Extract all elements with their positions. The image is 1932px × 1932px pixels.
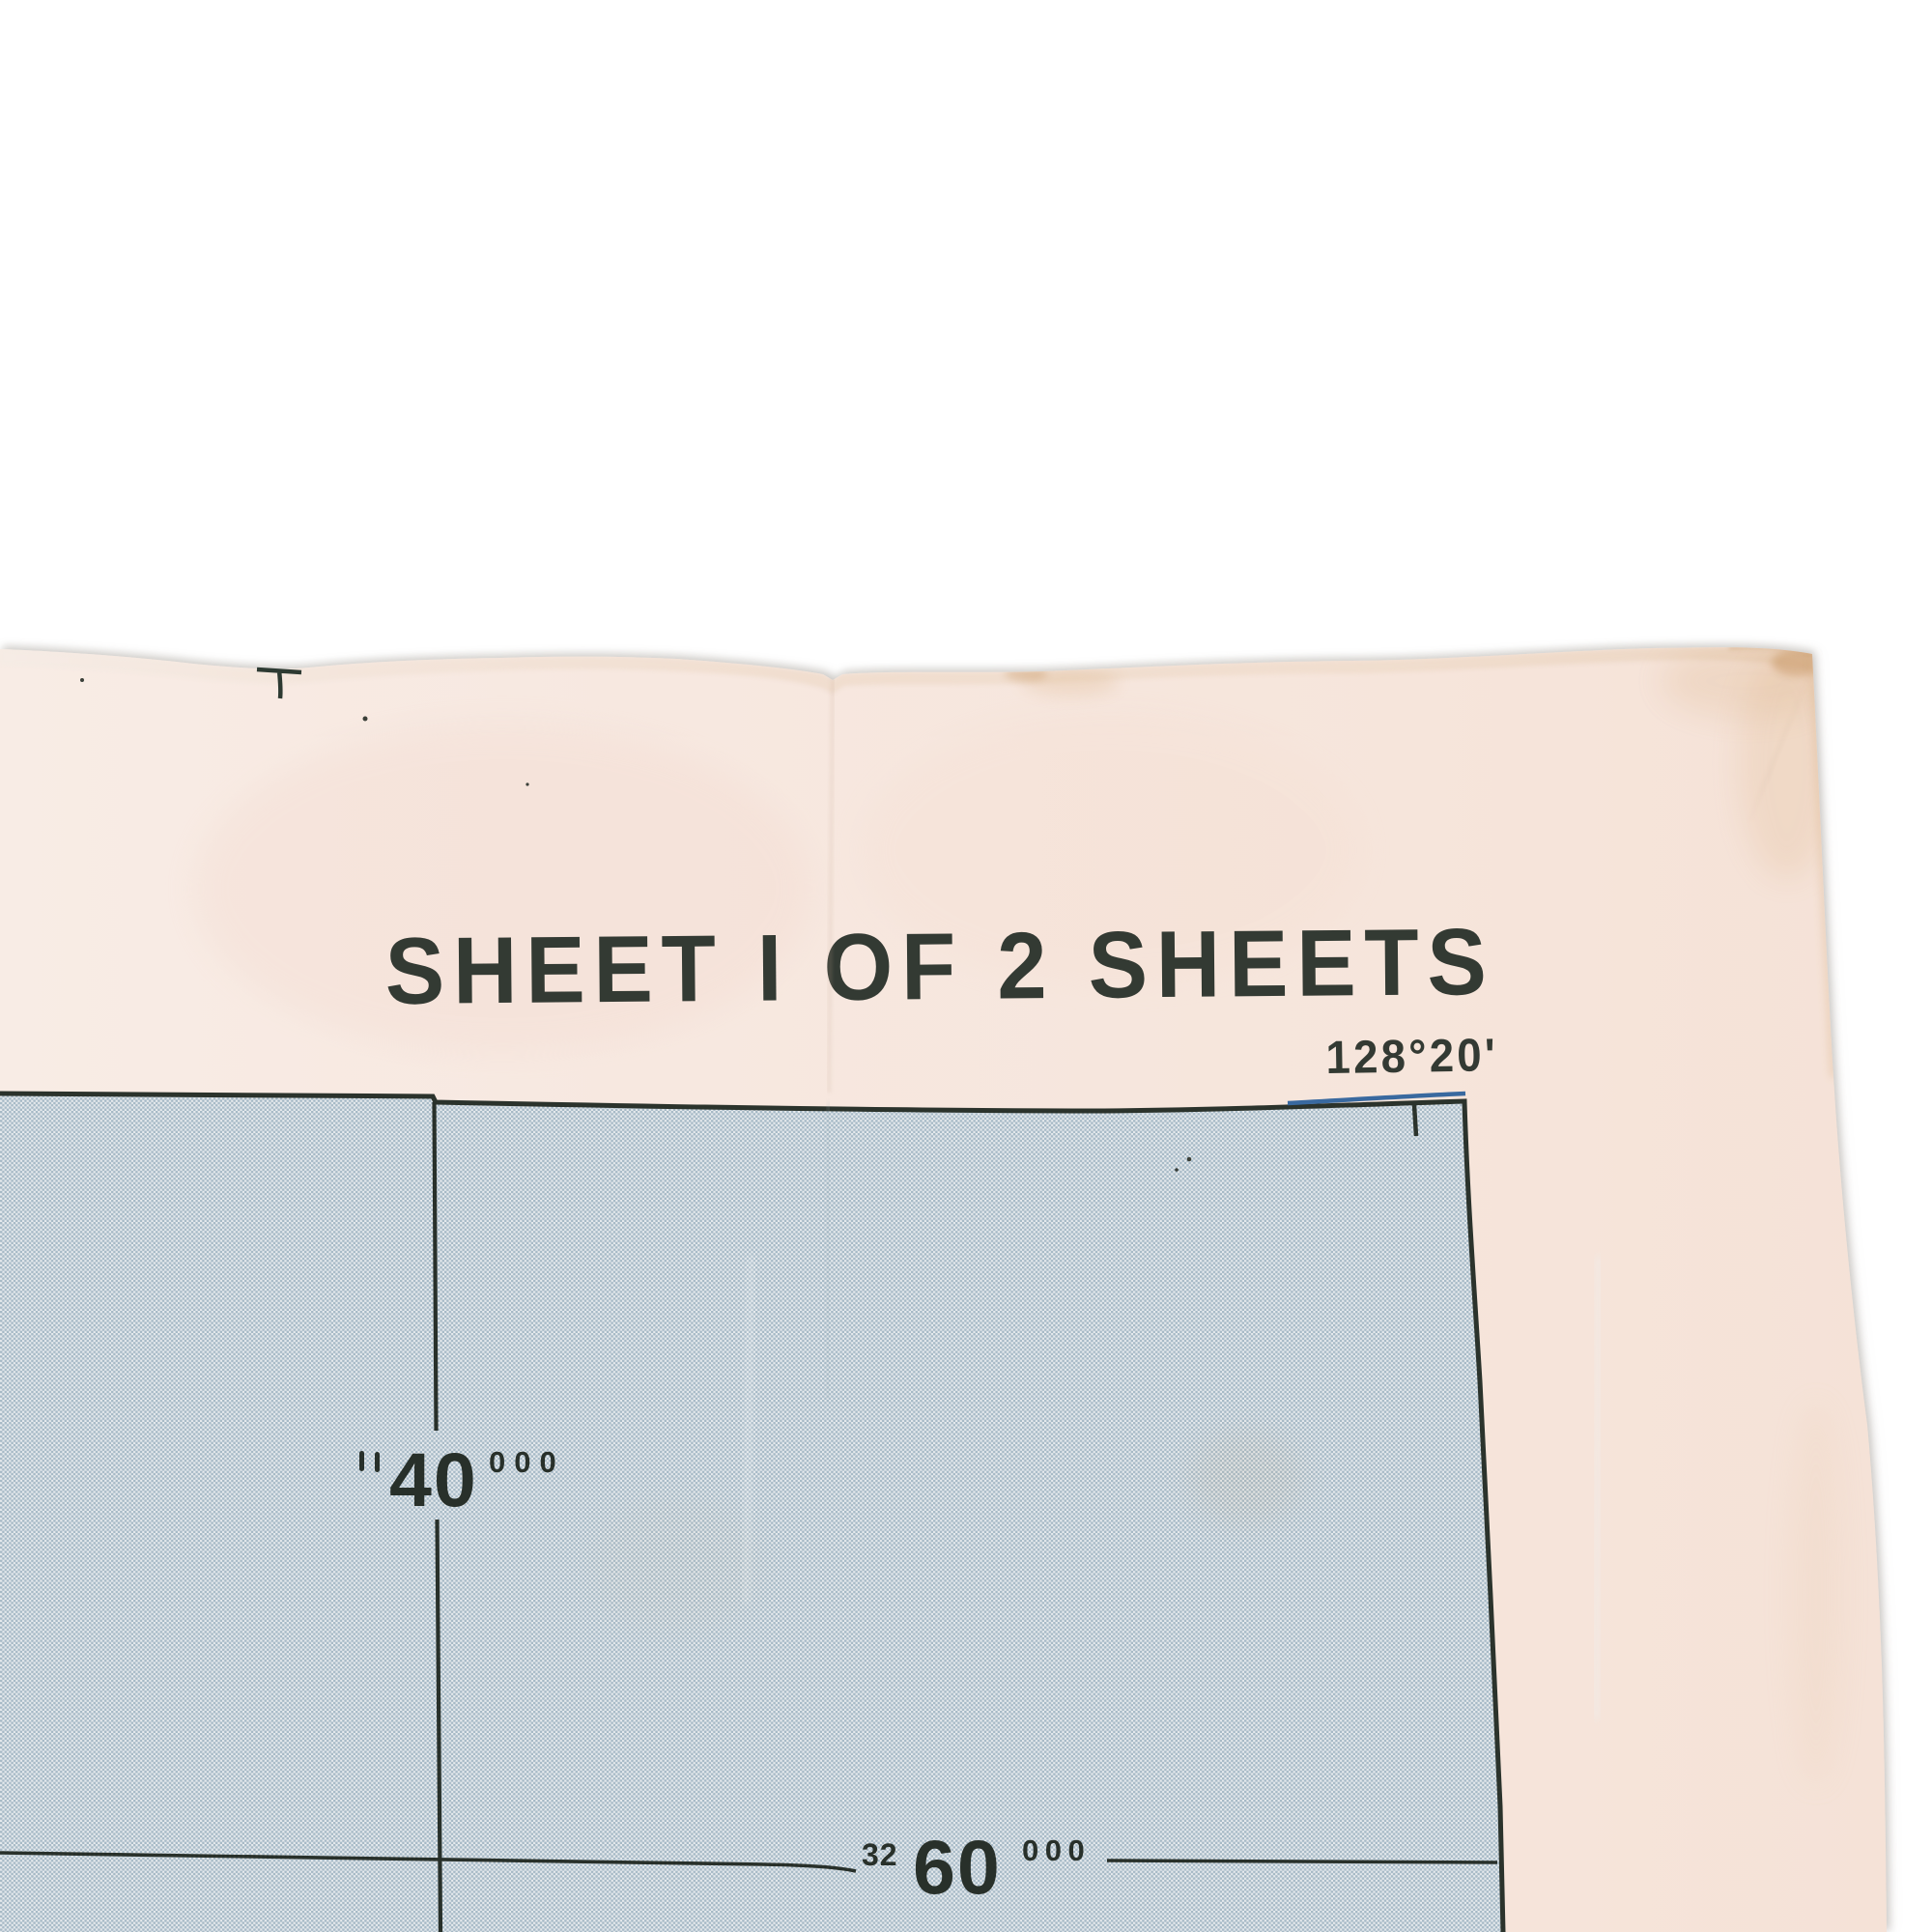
- svg-text:32: 32: [862, 1837, 898, 1872]
- svg-text:128°20': 128°20': [1325, 1029, 1498, 1083]
- svg-text:000: 000: [489, 1445, 565, 1479]
- svg-text:60: 60: [913, 1824, 1002, 1910]
- svg-text:40: 40: [389, 1436, 478, 1522]
- svg-text:000: 000: [1022, 1833, 1091, 1867]
- svg-text:SHEET I OF 2 SHEETS: SHEET I OF 2 SHEETS: [384, 909, 1495, 1024]
